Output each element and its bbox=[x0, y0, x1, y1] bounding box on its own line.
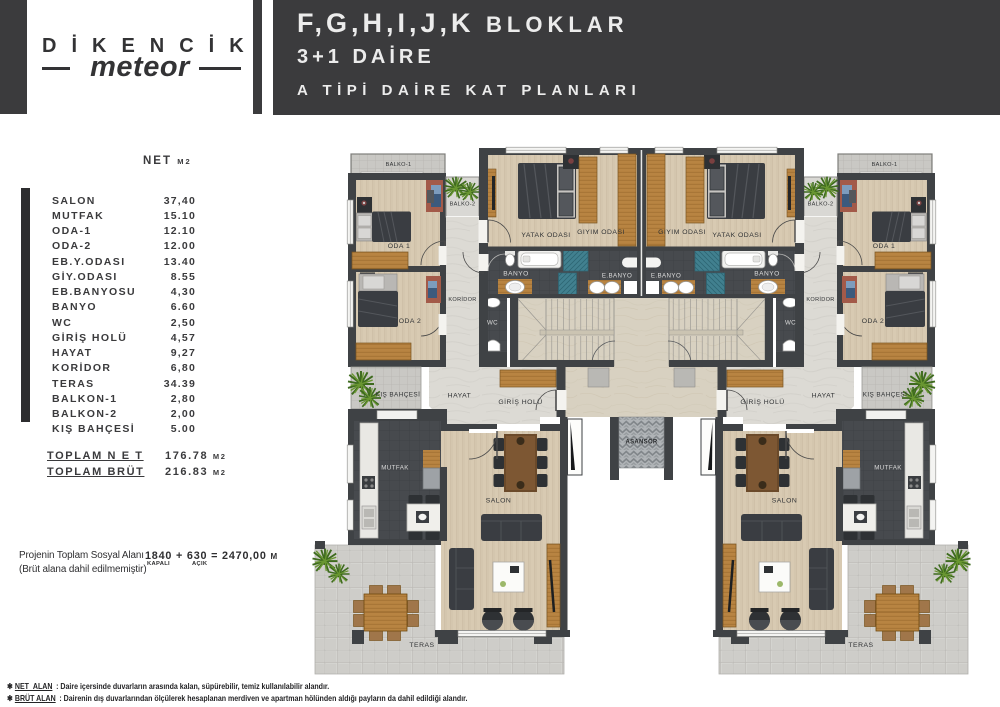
svg-text:KORİDOR: KORİDOR bbox=[806, 296, 834, 303]
svg-text:BALKO-1: BALKO-1 bbox=[872, 162, 898, 168]
svg-text:ODA 1: ODA 1 bbox=[388, 243, 411, 250]
svg-text:YATAK ODASI: YATAK ODASI bbox=[712, 232, 761, 239]
svg-text:KIŞ BAHÇESİ: KIŞ BAHÇESİ bbox=[376, 390, 421, 399]
svg-text:YATAK ODASI: YATAK ODASI bbox=[521, 232, 570, 239]
svg-text:ODA 2: ODA 2 bbox=[399, 318, 422, 325]
svg-text:MUTFAK: MUTFAK bbox=[874, 465, 902, 472]
svg-text:BALKO-2: BALKO-2 bbox=[808, 202, 834, 208]
svg-text:KORİDOR: KORİDOR bbox=[448, 296, 476, 303]
svg-text:KIŞ BAHÇESİ: KIŞ BAHÇESİ bbox=[863, 390, 908, 399]
svg-text:GİRİŞ HOLÜ: GİRİŞ HOLÜ bbox=[740, 397, 784, 406]
svg-text:TERAS: TERAS bbox=[848, 642, 873, 649]
svg-text:GIYIM ODASI: GIYIM ODASI bbox=[658, 229, 706, 236]
svg-text:ASANSÖR: ASANSÖR bbox=[625, 439, 657, 446]
svg-text:SALON: SALON bbox=[772, 498, 798, 505]
svg-text:HAYAT: HAYAT bbox=[448, 393, 472, 400]
svg-text:MUTFAK: MUTFAK bbox=[381, 465, 409, 472]
svg-text:E.BANYO: E.BANYO bbox=[602, 273, 632, 280]
svg-text:ODA 2: ODA 2 bbox=[862, 318, 885, 325]
svg-text:GIYIM ODASI: GIYIM ODASI bbox=[577, 229, 625, 236]
svg-text:GİRİŞ HOLÜ: GİRİŞ HOLÜ bbox=[498, 397, 542, 406]
svg-text:BANYO: BANYO bbox=[503, 271, 529, 278]
svg-text:E.BANYO: E.BANYO bbox=[651, 273, 681, 280]
svg-text:BANYO: BANYO bbox=[754, 271, 780, 278]
svg-text:ODA 1: ODA 1 bbox=[873, 243, 896, 250]
svg-text:WC: WC bbox=[785, 320, 796, 327]
svg-text:BALKO-2: BALKO-2 bbox=[450, 202, 476, 208]
svg-text:WC: WC bbox=[487, 320, 498, 327]
svg-text:TERAS: TERAS bbox=[409, 642, 434, 649]
svg-text:SALON: SALON bbox=[486, 498, 512, 505]
svg-text:BALKO-1: BALKO-1 bbox=[386, 162, 412, 168]
svg-text:HAYAT: HAYAT bbox=[812, 393, 836, 400]
